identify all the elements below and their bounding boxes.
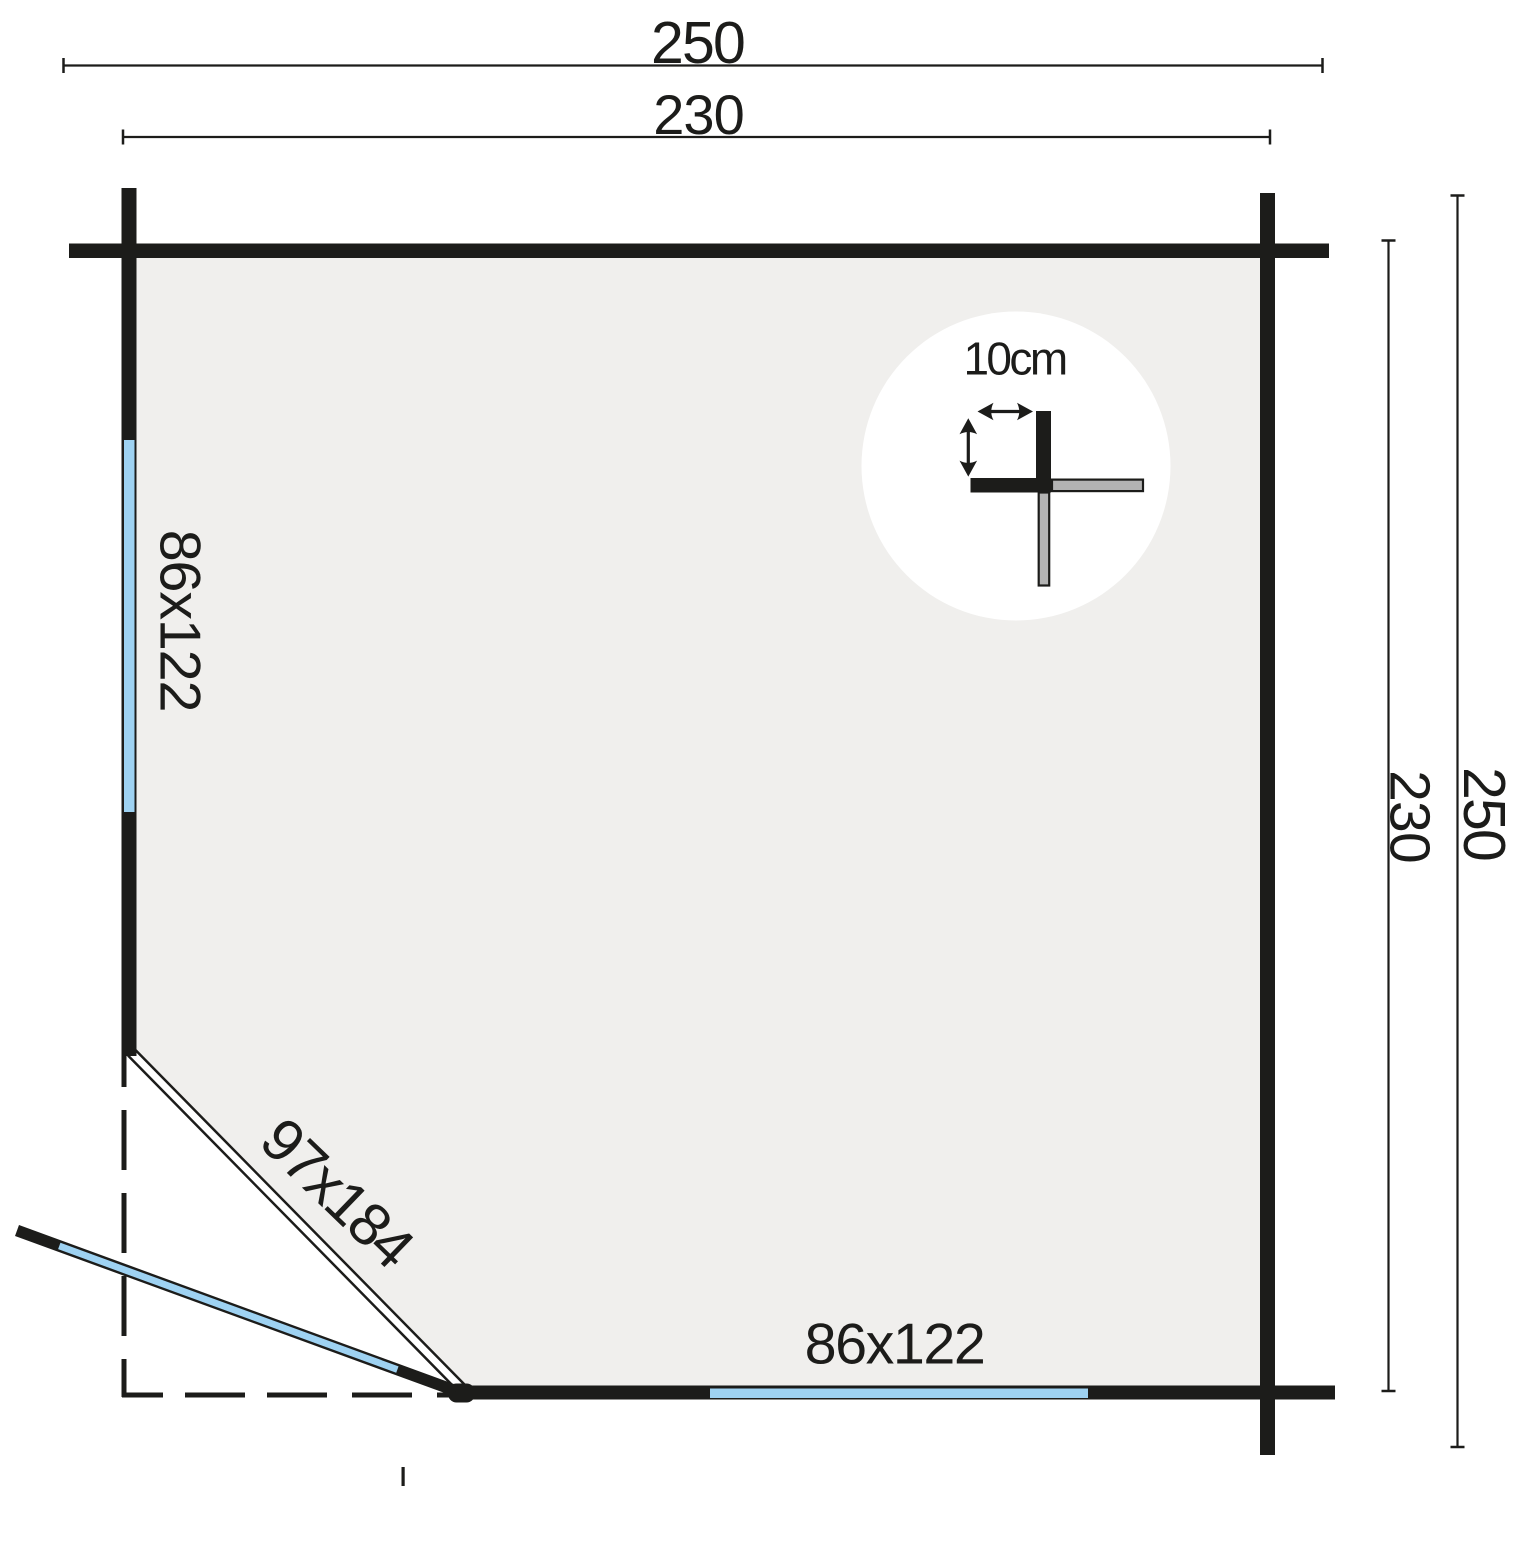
svg-text:250: 250 <box>1451 767 1517 860</box>
svg-text:230: 230 <box>653 83 743 146</box>
svg-text:250: 250 <box>651 10 744 76</box>
svg-text:10cm: 10cm <box>963 333 1065 385</box>
svg-text:230: 230 <box>1378 770 1442 863</box>
svg-text:86x122: 86x122 <box>148 530 212 711</box>
svg-text:86x122: 86x122 <box>805 1313 985 1377</box>
